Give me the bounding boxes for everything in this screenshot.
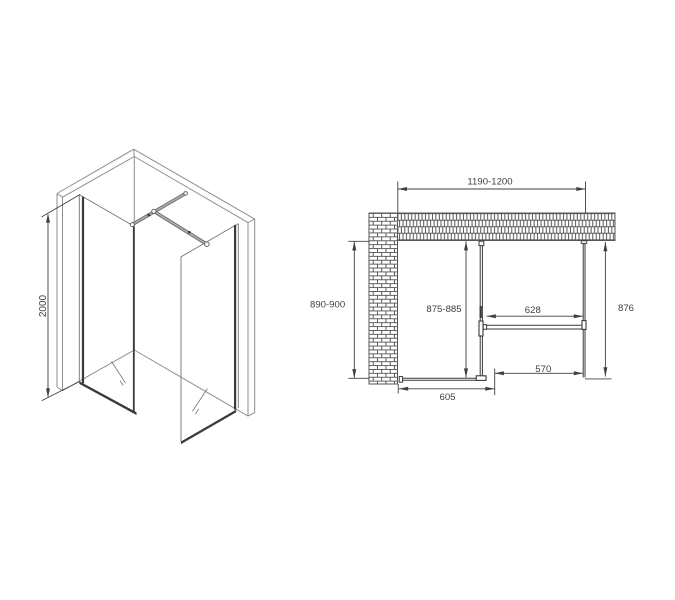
svg-text:890-900: 890-900 [310, 299, 345, 310]
svg-text:1190-1200: 1190-1200 [467, 177, 512, 188]
svg-text:570: 570 [535, 364, 551, 375]
svg-text:876: 876 [618, 303, 634, 314]
svg-text:875-885: 875-885 [426, 304, 461, 315]
svg-text:628: 628 [525, 305, 541, 316]
svg-text:605: 605 [439, 392, 455, 403]
svg-text:2000: 2000 [38, 294, 49, 317]
